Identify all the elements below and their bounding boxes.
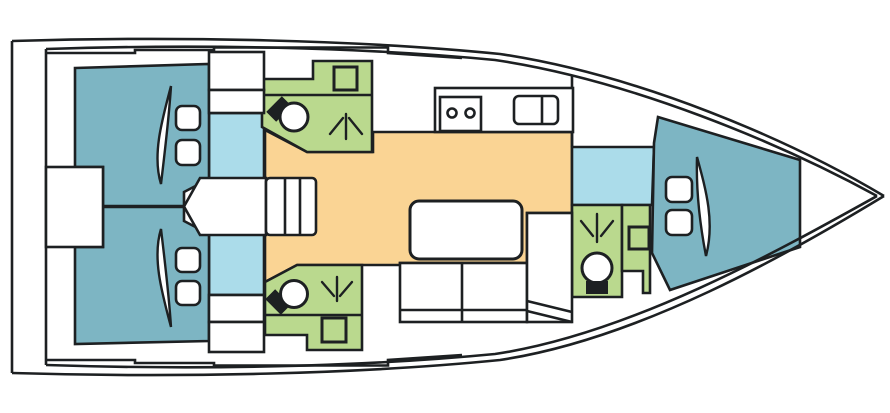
companionway-steps-icon [266,178,316,235]
burner-icon [466,109,475,118]
locker-top-2 [209,90,264,113]
double-sink-icon [514,96,558,124]
yacht-floor-plan [0,0,890,413]
toilet-icon [582,253,612,294]
deck-line-bottom [46,355,462,366]
locker-bottom-1 [209,295,264,322]
engine-box [46,167,103,247]
pillow-icon [666,210,692,235]
nav-area [572,147,654,205]
pillow-icon [176,106,200,130]
saloon-table [410,201,522,259]
locker-top-1 [209,52,264,90]
fore-cabin [652,117,800,290]
pillow-icon [666,177,692,202]
burner-icon [448,109,457,118]
settee [400,263,527,322]
pillow-icon [176,140,200,165]
pillow-icon [176,248,200,272]
pillow-icon [176,281,200,305]
locker-bottom-2 [209,322,264,352]
companionway [184,178,266,235]
